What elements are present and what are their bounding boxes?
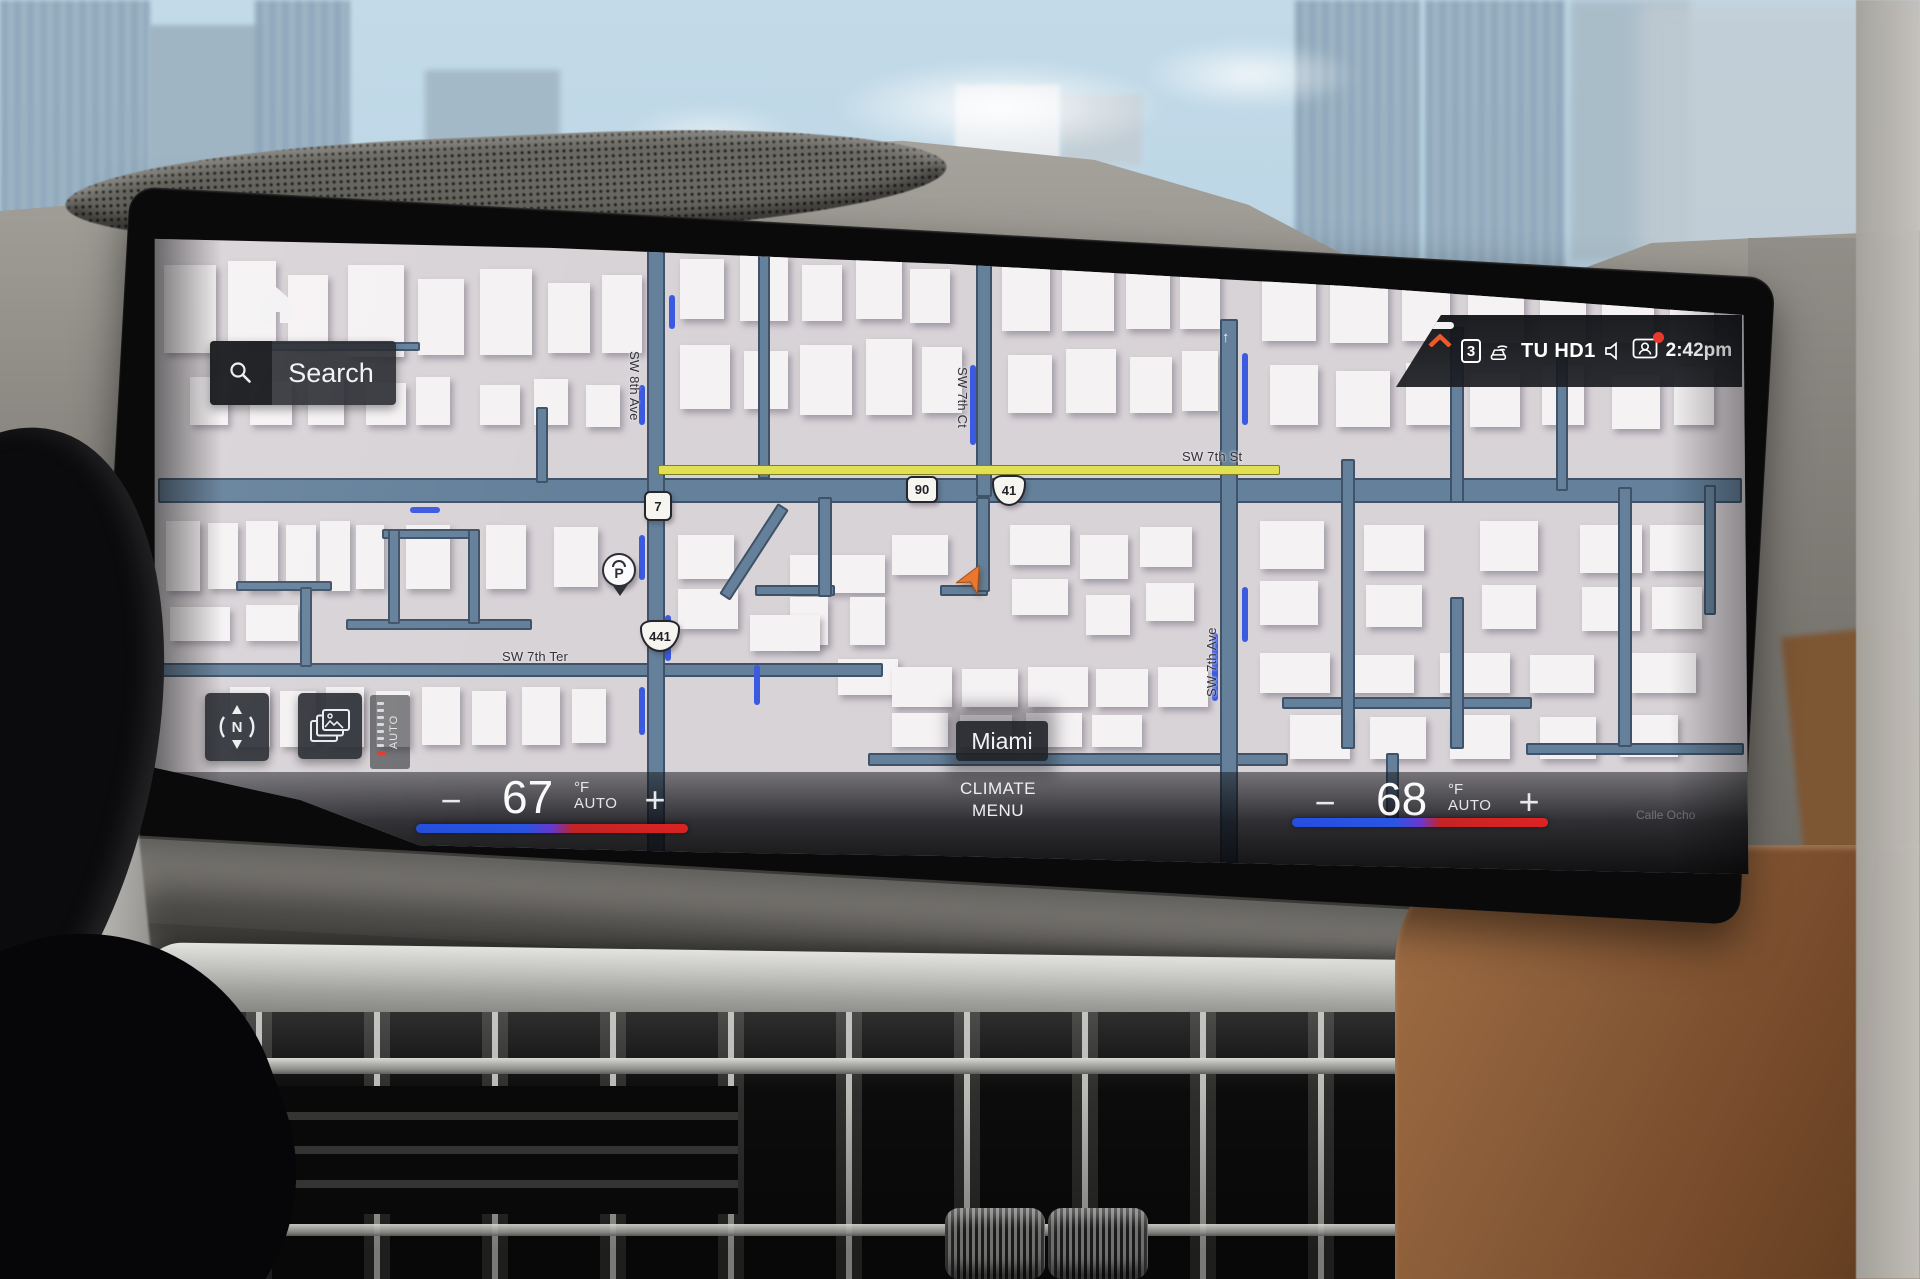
map-building <box>472 691 506 745</box>
traffic-segment <box>754 665 760 705</box>
passenger-temp-plus-button[interactable]: + <box>1506 781 1552 823</box>
map-building <box>1260 521 1324 569</box>
vent-roller-knob[interactable] <box>945 1208 1045 1279</box>
map-building <box>1260 653 1330 693</box>
map-building <box>1008 355 1052 413</box>
driver-auto-mode: AUTO <box>574 796 617 812</box>
radio-station-label: TU HD1 <box>1521 340 1596 363</box>
city-tower <box>1425 0 1565 295</box>
map-building <box>356 525 384 589</box>
map-building <box>1350 655 1414 693</box>
clock: 2:42pm <box>1666 340 1733 362</box>
map-building <box>1650 525 1704 571</box>
driver-temp-plus-button[interactable]: + <box>632 779 678 821</box>
map-building <box>1270 365 1318 425</box>
map-building <box>486 525 526 589</box>
map-building <box>1480 521 1538 571</box>
map-building <box>680 345 730 409</box>
map-building <box>480 385 520 425</box>
compass-icon: N <box>215 703 259 751</box>
map-building <box>1580 525 1642 573</box>
map-road <box>388 529 400 624</box>
map-building <box>422 687 460 745</box>
traffic-segment <box>970 365 976 445</box>
current-location-arrow-icon <box>956 561 990 595</box>
driver-temp-minus-button[interactable]: − <box>428 780 474 822</box>
map-building <box>1336 371 1390 427</box>
map-building <box>170 607 230 641</box>
map-building <box>418 279 464 355</box>
map-building <box>554 527 598 587</box>
speaker-icon <box>1603 340 1625 362</box>
map-road <box>300 587 312 667</box>
map-building <box>1146 583 1194 621</box>
map-building <box>1096 669 1148 707</box>
climate-menu-button[interactable]: CLIMATE MENU <box>938 778 1058 822</box>
passenger-temp-gradient-bar <box>1292 818 1548 827</box>
map-road <box>158 478 1742 503</box>
map-building <box>416 377 450 425</box>
driver-temp-unit: °F <box>574 780 617 796</box>
map-road <box>468 529 480 624</box>
map-building <box>1002 261 1050 331</box>
map-building <box>1012 579 1068 615</box>
auto-zoom-label: AUTO <box>388 715 400 749</box>
map-building <box>480 269 532 355</box>
map-road <box>1282 697 1532 709</box>
map-road <box>1341 459 1355 749</box>
street-label-sw-7th-ct: SW 7th Ct <box>955 367 970 428</box>
map-building <box>1652 587 1702 629</box>
driver-temp-value: 67 <box>502 774 553 820</box>
faint-street-label: Calle Ocho <box>1636 808 1695 822</box>
passenger-temp-value: 68 <box>1376 776 1427 822</box>
street-label-sw-8th-ave: SW 8th Ave <box>627 351 642 421</box>
notification-dot <box>1653 332 1664 343</box>
map-building <box>1260 581 1318 625</box>
route-shield-441: 441 <box>640 620 680 652</box>
map-building <box>1364 525 1424 571</box>
map-road <box>818 497 832 597</box>
map-building <box>246 605 298 641</box>
route-shield-90: 90 <box>906 476 938 503</box>
a-pillar <box>1856 0 1920 1279</box>
map-building <box>866 339 912 415</box>
map-road <box>758 247 770 479</box>
route-shield-7: 7 <box>644 491 672 521</box>
zoom-tick-marks <box>377 702 386 755</box>
map-building <box>1092 715 1142 747</box>
map-building <box>1182 351 1218 411</box>
map-road <box>158 663 883 677</box>
map-building <box>850 597 885 645</box>
driver-temp-gradient-bar <box>416 824 688 833</box>
map-building <box>680 259 724 319</box>
map-road <box>236 581 332 591</box>
city-label-chip: Miami <box>956 721 1048 761</box>
passenger-temp-unit: °F <box>1448 782 1491 798</box>
compass-button[interactable]: N <box>205 693 269 761</box>
traffic-segment <box>669 295 675 329</box>
cloud <box>1140 40 1360 110</box>
map-building <box>962 669 1018 707</box>
traffic-segment <box>1242 353 1248 425</box>
map-building <box>586 385 620 427</box>
parking-pin-head: P <box>602 553 636 587</box>
one-way-arrow-icon: ↑ <box>1222 329 1230 346</box>
map-building <box>750 615 820 651</box>
map-building <box>286 525 316 589</box>
city-label: Miami <box>971 728 1032 755</box>
map-road <box>1450 597 1464 749</box>
map-building <box>678 535 734 579</box>
map-road <box>1704 485 1716 615</box>
traffic-segment <box>410 507 440 513</box>
connected-vehicle-icon <box>1488 339 1514 363</box>
radio-preset-badge: 3 <box>1461 339 1481 363</box>
map-building <box>166 521 200 591</box>
street-label-sw-7th-ter: SW 7th Ter <box>502 649 568 664</box>
traffic-segment <box>639 535 645 580</box>
map-road <box>1526 743 1744 755</box>
map-building <box>548 283 590 353</box>
map-building <box>572 689 606 743</box>
map-building <box>1140 527 1192 567</box>
map-building <box>1010 525 1070 565</box>
traffic-segment <box>1242 587 1248 642</box>
map-building <box>1066 349 1116 413</box>
map-building <box>856 257 902 319</box>
map-road <box>976 247 992 497</box>
map-building <box>1630 653 1696 693</box>
vent-roller-knob[interactable] <box>1048 1208 1148 1279</box>
map-building <box>522 687 560 745</box>
parking-poi-pin[interactable]: P <box>602 553 638 599</box>
map-building <box>1080 535 1128 579</box>
map-building <box>802 265 842 321</box>
home-button[interactable] <box>258 285 294 330</box>
map-layers-button[interactable] <box>298 693 362 759</box>
map-building <box>892 535 948 575</box>
map-road <box>536 407 548 483</box>
parking-pin-label: P <box>614 567 623 580</box>
street-label-sw-7th-st: SW 7th St <box>1182 449 1242 464</box>
car-cockpit-photo: ↑ SW 8th Ave SW 7th Ct SW 7th St SW 7th … <box>0 0 1920 1279</box>
search-label: Search <box>272 341 396 405</box>
search-icon-box <box>210 341 272 405</box>
map-building <box>1482 585 1536 629</box>
infotainment-screen: ↑ SW 8th Ave SW 7th Ct SW 7th St SW 7th … <box>150 235 1750 880</box>
passenger-auto-mode: AUTO <box>1448 798 1491 814</box>
map-building <box>602 275 642 353</box>
map-building <box>892 667 952 707</box>
map-building <box>1130 357 1172 413</box>
notification-contact-icon <box>1632 337 1659 365</box>
map-building <box>164 265 216 353</box>
street-label-sw-7th-ave: SW 7th Ave <box>1204 627 1219 697</box>
traffic-segment <box>639 687 645 735</box>
search-button[interactable]: Search <box>210 341 396 405</box>
map-building <box>892 713 948 747</box>
map-building <box>800 345 852 415</box>
chrome-bar <box>160 1058 1520 1074</box>
status-bar[interactable]: 3 TU HD1 2:42pm <box>1396 315 1742 387</box>
air-vent-panel <box>160 1012 1520 1279</box>
map-layers-icon <box>309 708 351 744</box>
map-building <box>288 275 328 347</box>
map-building <box>1086 595 1130 635</box>
map-road <box>1618 487 1632 747</box>
svg-text:N: N <box>232 719 243 736</box>
map-building <box>1366 585 1422 627</box>
map-building <box>1158 667 1208 707</box>
search-icon <box>228 360 254 386</box>
map-road <box>346 619 532 630</box>
chrome-bar <box>160 1224 1520 1236</box>
map-building <box>910 269 950 323</box>
map-building <box>1028 667 1088 707</box>
map-road-highlighted <box>658 465 1280 475</box>
auto-zoom-slider[interactable]: AUTO <box>370 695 410 769</box>
map-building <box>1530 655 1594 693</box>
zoom-current-tick <box>377 751 386 755</box>
chevron-up-icon <box>1428 334 1452 347</box>
home-icon <box>258 285 294 325</box>
map-building <box>208 523 238 589</box>
